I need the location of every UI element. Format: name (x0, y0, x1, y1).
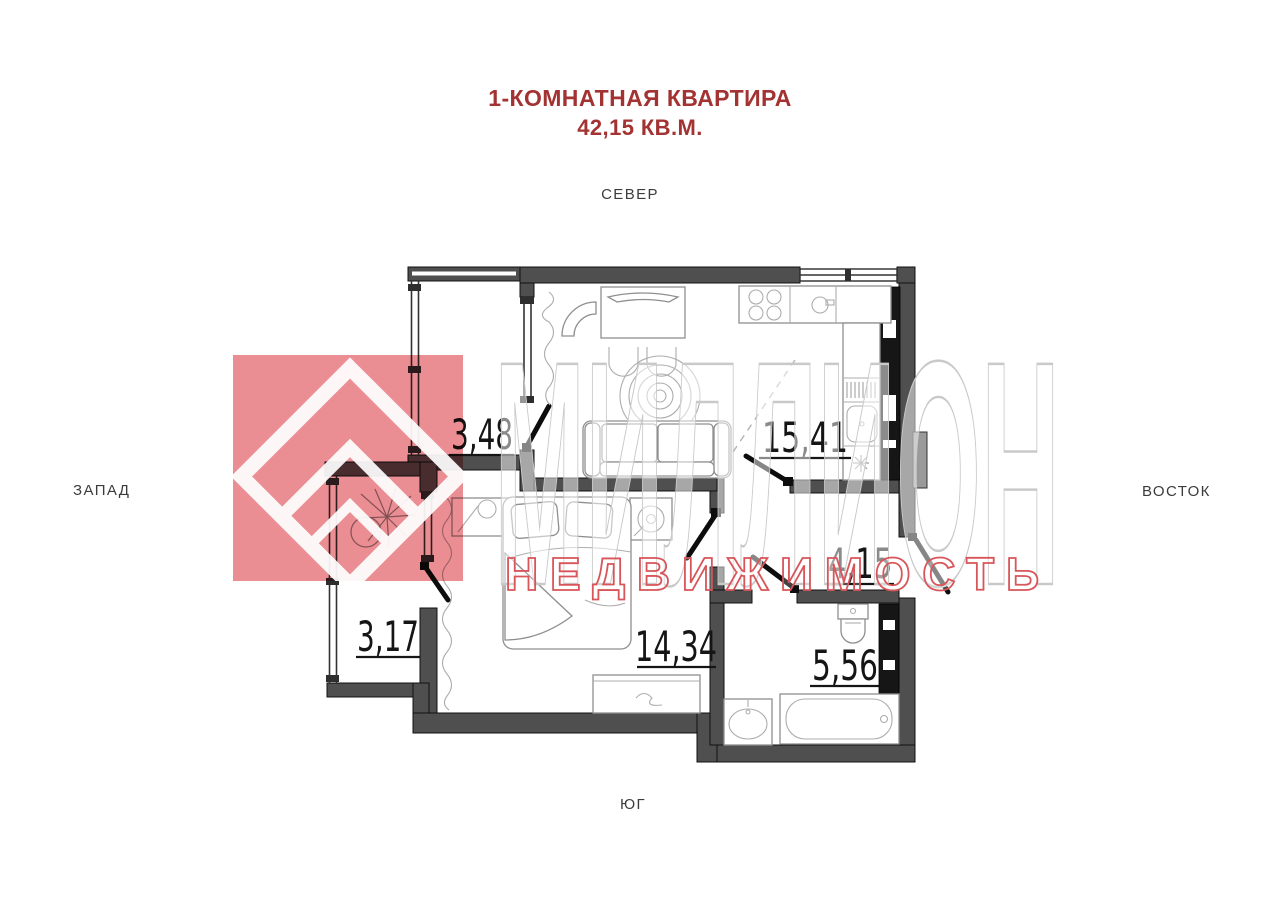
washing-machine (630, 498, 672, 540)
area-bathroom: 5,56 (812, 641, 878, 690)
nightstand (452, 498, 508, 536)
wall (899, 283, 915, 537)
floor-plan: 3,48 15,41 3,17 14,34 4,15 5,56 (0, 0, 1280, 908)
wall (520, 478, 717, 491)
wall (520, 450, 534, 491)
bed-pillow (565, 501, 613, 538)
dresser (593, 675, 700, 713)
bedroom-furniture (443, 497, 701, 713)
area-balcony-bottom: 3,17 (357, 612, 419, 661)
kitchen-counter-right (843, 323, 880, 480)
curtain (443, 498, 452, 710)
bed-pillow (511, 501, 560, 539)
armchair (562, 302, 596, 336)
door-entrance (916, 540, 948, 592)
wall (520, 267, 800, 283)
bathroom-shaft (879, 604, 899, 694)
exterior-unit (913, 432, 927, 488)
kitchen-counter-top (739, 286, 891, 323)
window-bedroom-balcony (421, 492, 434, 562)
wall (899, 598, 915, 762)
door-balcony-top (527, 406, 549, 446)
door-bathroom (753, 557, 794, 588)
door-balcony-bottom (426, 568, 448, 600)
balcony-plant (351, 487, 415, 547)
wall (897, 267, 915, 283)
window-balcony-top (408, 281, 421, 455)
window-living-balcony (520, 297, 534, 403)
chair (647, 347, 676, 376)
wall (325, 462, 422, 476)
window-balcony-bottom (326, 476, 339, 683)
wall (697, 745, 915, 762)
curtain (542, 292, 553, 405)
wall (797, 590, 899, 603)
area-hall: 4,15 (828, 539, 892, 588)
wall (413, 713, 710, 733)
window-kitchen (800, 269, 897, 281)
wall (413, 683, 429, 713)
wall (327, 683, 427, 697)
bathtub (780, 694, 899, 744)
area-balcony-top: 3,48 (451, 410, 513, 459)
wall (790, 480, 899, 493)
living-room-furniture (542, 287, 731, 478)
toilet (838, 604, 868, 643)
washbasin (724, 699, 772, 745)
wall (420, 462, 437, 492)
wall (710, 590, 752, 603)
sofa (583, 421, 731, 478)
area-bedroom: 14,34 (635, 622, 717, 671)
bed (503, 497, 631, 649)
door-bedroom (687, 514, 716, 558)
area-kitchen-living: 15,41 (762, 413, 848, 462)
chair (609, 347, 638, 376)
wall (520, 283, 534, 297)
